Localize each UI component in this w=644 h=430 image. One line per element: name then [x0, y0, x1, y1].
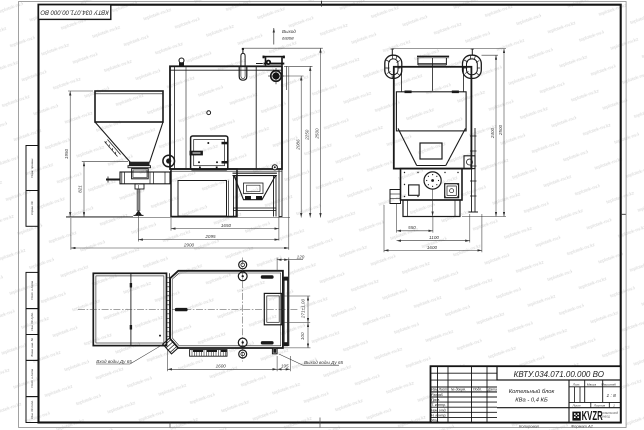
svg-text:1600: 1600 [427, 245, 438, 250]
svg-text:Разраб.: Разраб. [431, 393, 443, 397]
svg-text:1650: 1650 [221, 223, 232, 228]
svg-text:Масса: Масса [587, 382, 596, 386]
svg-text:821: 821 [78, 185, 83, 193]
svg-text:Пров.: Пров. [431, 398, 440, 402]
svg-text:Выход воды Ду 65: Выход воды Ду 65 [304, 360, 344, 365]
svg-text:1600: 1600 [216, 364, 227, 369]
svg-text:Изм: Изм [431, 388, 438, 392]
svg-text:Утв.: Утв. [431, 419, 439, 423]
svg-text:2086: 2086 [295, 139, 300, 151]
svg-text:Н. контр.: Н. контр. [431, 413, 446, 417]
svg-text:Лист: Лист [438, 388, 448, 392]
svg-text:Котельный блок: Котельный блок [509, 388, 555, 395]
svg-text:KVZR: KVZR [582, 410, 603, 423]
svg-text:Лист: Лист [572, 404, 581, 408]
svg-text:1 : 8: 1 : 8 [607, 393, 617, 399]
svg-text:195: 195 [281, 364, 289, 369]
svg-text:271±1,00: 271±1,00 [301, 298, 306, 319]
svg-text:2500: 2500 [315, 128, 320, 140]
svg-text:Масштаб: Масштаб [601, 382, 616, 386]
svg-text:1100: 1100 [429, 235, 439, 240]
svg-text:550: 550 [408, 225, 416, 230]
svg-text:Подп. и дата: Подп. и дата [30, 369, 34, 388]
svg-text:1: 1 [613, 403, 615, 407]
svg-text:2400: 2400 [490, 127, 495, 139]
svg-text:2250: 2250 [304, 129, 309, 141]
svg-text:Инв. № подл.: Инв. № подл. [30, 400, 34, 419]
svg-text:КОЗЕЛЬСКИЙ: КОЗЕЛЬСКИЙ [602, 412, 619, 415]
svg-text:Справ. №: Справ. № [30, 201, 34, 215]
svg-text:Нач. отд.: Нач. отд. [431, 408, 446, 412]
svg-text:120: 120 [297, 254, 305, 259]
svg-text:1950: 1950 [64, 148, 69, 159]
svg-text:Листов: Листов [593, 404, 606, 408]
svg-text:Дата: Дата [487, 388, 497, 392]
svg-text:Формат А2: Формат А2 [571, 423, 594, 428]
svg-text:Инв. № дубл.: Инв. № дубл. [30, 312, 34, 331]
svg-text:2900: 2900 [183, 242, 195, 247]
svg-text:газов: газов [282, 36, 294, 41]
svg-text:Вход воды Ду 65: Вход воды Ду 65 [96, 359, 132, 364]
svg-text:2500: 2500 [498, 124, 503, 136]
svg-text:100: 100 [300, 332, 305, 340]
svg-text:Подп. и дата: Подп. и дата [30, 281, 34, 300]
svg-text:КВа - 0,4 КБ: КВа - 0,4 КБ [515, 398, 548, 404]
svg-text:Лит.: Лит. [572, 382, 580, 386]
svg-text:Т. контр.: Т. контр. [431, 403, 446, 407]
svg-text:Перв. примен.: Перв. примен. [30, 158, 34, 178]
svg-text:№ докум.: № докум. [451, 388, 466, 392]
svg-text:Копировал: Копировал [519, 423, 540, 428]
svg-text:КВТУ 034.071.00.000 ВО: КВТУ 034.071.00.000 ВО [40, 8, 109, 14]
svg-text:ЗАВОД: ЗАВОД [602, 416, 611, 419]
svg-text:КВТУ.034.071.00.000 ВО: КВТУ.034.071.00.000 ВО [514, 370, 604, 379]
svg-text:Выход: Выход [282, 29, 296, 34]
svg-text:Взам. инв. №: Взам. инв. № [30, 337, 34, 356]
svg-text:Подп.: Подп. [473, 388, 482, 392]
svg-text:2095: 2095 [204, 234, 216, 239]
